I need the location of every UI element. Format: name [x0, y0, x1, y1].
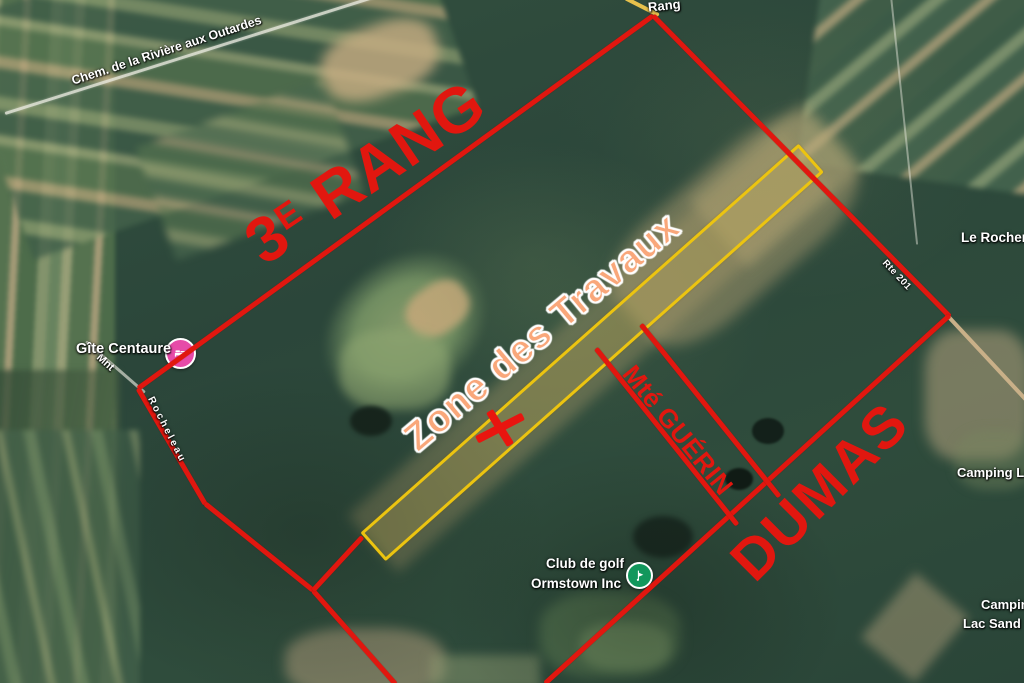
- boundary-line-west-3: [311, 588, 397, 683]
- satellite-map-canvas[interactable]: Chem. de la Rivière aux Outardes Rang Rt…: [0, 0, 1024, 683]
- boundary-line-3e-rang: [137, 13, 655, 390]
- terrain-topright-fields: [797, 0, 1024, 196]
- terrain-pond-1: [350, 406, 392, 436]
- terrain-right-tan: [925, 330, 1024, 460]
- place-label-camping-right[interactable]: Camping La: [957, 465, 1024, 480]
- road-label-outardes[interactable]: Chem. de la Rivière aux Outardes: [70, 13, 263, 88]
- terrain-bottomright-tan: [861, 572, 969, 682]
- work-zone-band: [360, 144, 823, 561]
- annotation-3e-rang: 3ERANG: [234, 69, 496, 275]
- terrain-golf-green-2: [580, 622, 670, 670]
- road-label-rocheleau[interactable]: Rocheleau: [145, 395, 188, 465]
- road-outardes: [5, 0, 454, 115]
- terrain-right-green: [955, 430, 1024, 490]
- road-topright-faint: [890, 0, 918, 245]
- place-label-gite-centaure[interactable]: Gîte Centaure: [76, 341, 171, 357]
- spur-line-to-zone: [311, 535, 364, 592]
- place-label-golf-line1[interactable]: Club de golf: [546, 556, 624, 571]
- road-rte201-continuation: [945, 313, 1024, 407]
- terrain-bottommid-green: [430, 655, 540, 683]
- terrain-mid-tan-field: [397, 271, 478, 348]
- place-label-le-rocher[interactable]: Le Rocher: [961, 230, 1024, 245]
- place-label-camping-bottom-line1[interactable]: Camping: [981, 597, 1024, 612]
- red-x-marker-icon: [475, 407, 525, 449]
- terrain-bottomleft-fields: [0, 430, 140, 683]
- annotation-mte-guerin: Mté GUÉRIN: [618, 360, 738, 499]
- road-label-rang[interactable]: Rang: [647, 0, 681, 15]
- terrain-bottommid-tan: [285, 628, 445, 683]
- place-label-golf-line2[interactable]: Ormstown Inc: [531, 576, 621, 591]
- terrain-pond-3: [752, 418, 784, 444]
- boundary-line-dumas: [543, 313, 951, 683]
- terrain-dark-wood: [633, 516, 693, 558]
- terrain-left-lower-shade: [0, 370, 120, 683]
- golf-flag-pin-icon: [633, 569, 646, 582]
- place-label-camping-bottom-line2[interactable]: Lac Sand: [963, 616, 1021, 631]
- boundary-line-west-2: [203, 501, 314, 592]
